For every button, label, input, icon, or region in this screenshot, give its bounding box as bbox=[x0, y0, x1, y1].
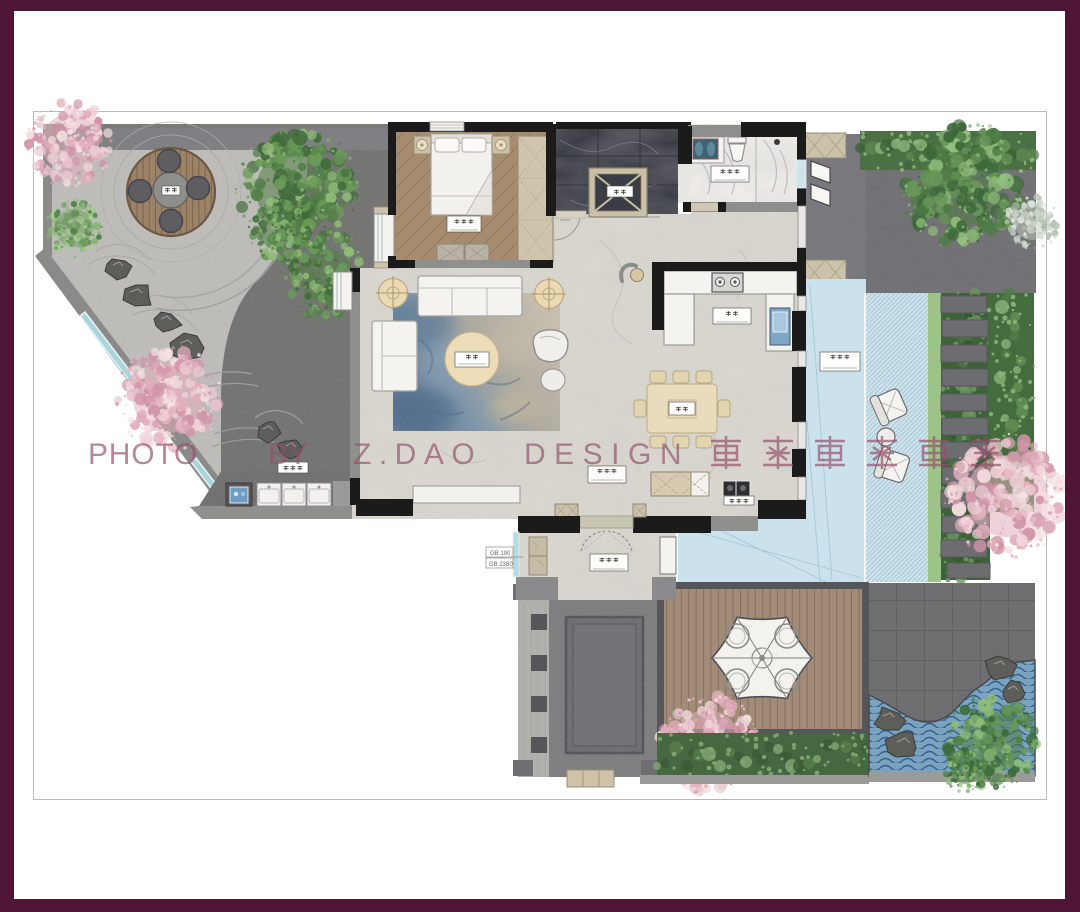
svg-text:GB 2380: GB 2380 bbox=[489, 562, 513, 568]
svg-text:DESIGN: DESIGN bbox=[524, 438, 690, 471]
svg-text:PHOTO: PHOTO bbox=[88, 438, 198, 471]
svg-text:GB 190: GB 190 bbox=[490, 551, 511, 557]
svg-text:BY: BY bbox=[268, 438, 308, 471]
svg-text:Z.DAO: Z.DAO bbox=[353, 438, 482, 471]
